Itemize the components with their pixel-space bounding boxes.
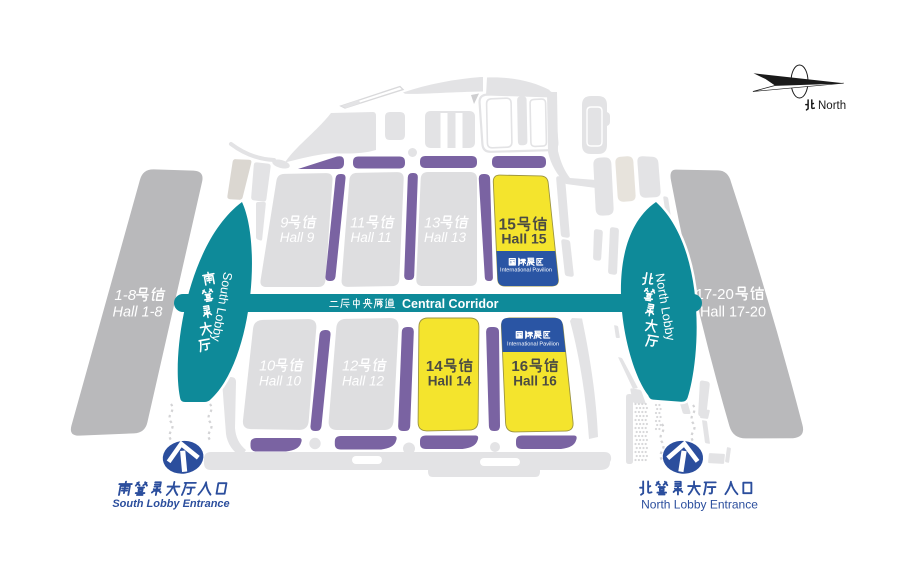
svg-text:Hall 1-8: Hall 1-8 [113,305,163,321]
svg-text:International Pavilion: International Pavilion [500,268,552,274]
svg-text:Hall 11: Hall 11 [350,230,391,245]
svg-text:10: 10 [259,359,275,375]
svg-text:1-8: 1-8 [114,287,136,304]
svg-text:16: 16 [511,358,528,375]
svg-text:Hall 12: Hall 12 [342,374,385,389]
svg-text:Hall 14: Hall 14 [428,374,472,389]
svg-text:14: 14 [426,358,443,375]
svg-text:Hall 9: Hall 9 [280,230,315,245]
svg-text:North Lobby Entrance: North Lobby Entrance [641,498,758,512]
svg-text:South Lobby Entrance: South Lobby Entrance [112,498,229,510]
svg-text:Hall 16: Hall 16 [513,374,557,389]
svg-text:Hall 13: Hall 13 [424,230,467,245]
svg-text:Hall 15: Hall 15 [501,231,546,247]
svg-text:Hall 10: Hall 10 [259,374,302,389]
svg-text:North: North [818,100,846,112]
svg-text:Hall 17-20: Hall 17-20 [700,305,766,321]
svg-text:12: 12 [342,359,358,375]
svg-text:Central Corridor: Central Corridor [402,297,499,311]
svg-text:International Pavilion: International Pavilion [507,342,559,348]
